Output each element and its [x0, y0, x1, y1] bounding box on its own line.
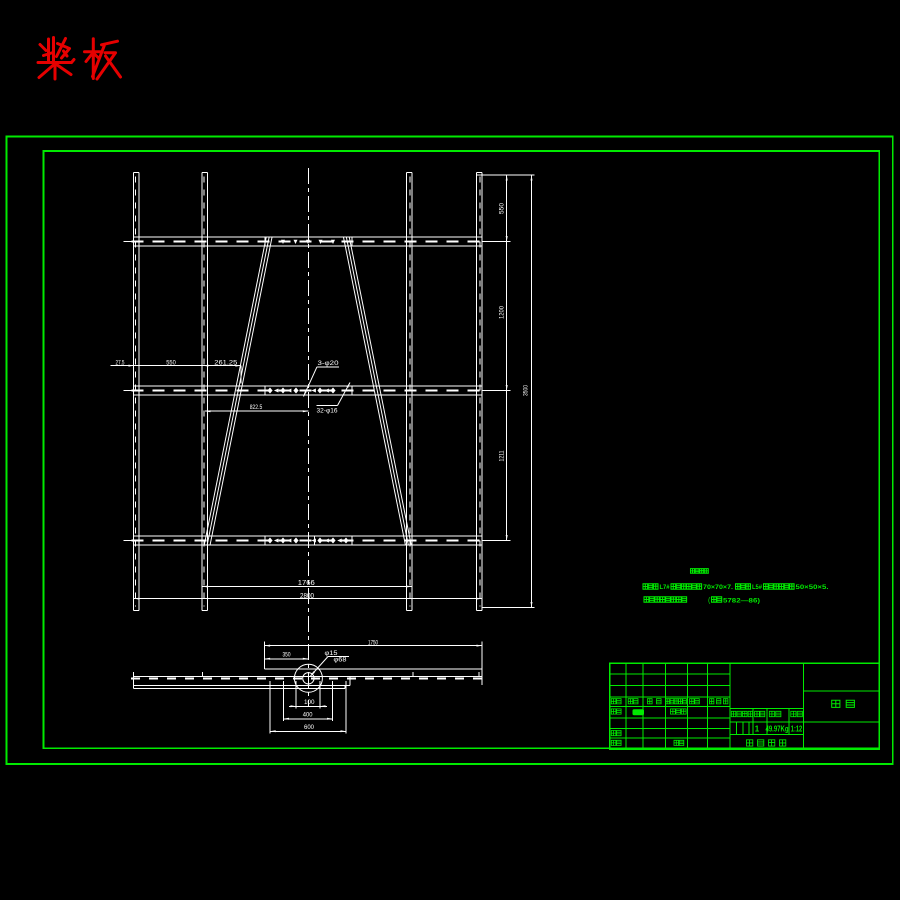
svg-text:70×70×7.: 70×70×7. [703, 584, 733, 591]
svg-text:1750: 1750 [368, 641, 378, 647]
svg-text:49.97Kg: 49.97Kg [766, 725, 789, 734]
svg-text:1: 1 [755, 725, 760, 734]
svg-text:550: 550 [166, 361, 176, 367]
svg-text:350: 350 [283, 652, 292, 658]
svg-text:50×50×5.: 50×50×5. [796, 584, 829, 591]
svg-text:2800: 2800 [300, 593, 314, 600]
svg-text:1766: 1766 [298, 580, 315, 587]
svg-text:1211: 1211 [499, 450, 505, 462]
svg-text:100: 100 [304, 700, 315, 706]
svg-text:1200: 1200 [499, 305, 505, 319]
svg-text:1:12: 1:12 [791, 725, 803, 734]
svg-text:600: 600 [304, 725, 315, 731]
svg-text:32-φ16: 32-φ16 [317, 407, 338, 414]
svg-text:550: 550 [499, 202, 505, 214]
svg-text:φ15: φ15 [325, 651, 339, 657]
svg-text:3500: 3500 [523, 384, 529, 396]
svg-text:5782—86): 5782—86) [723, 597, 760, 604]
svg-text:3-φ20: 3-φ20 [318, 360, 339, 367]
svg-text:822.5: 822.5 [250, 405, 263, 411]
svg-text:L5#: L5# [752, 584, 762, 591]
svg-text:L7#: L7# [660, 584, 670, 591]
svg-text:27.5: 27.5 [116, 361, 126, 367]
svg-text:φ68: φ68 [334, 658, 348, 664]
svg-text:261.25: 261.25 [214, 361, 238, 367]
svg-text:400: 400 [303, 713, 313, 719]
